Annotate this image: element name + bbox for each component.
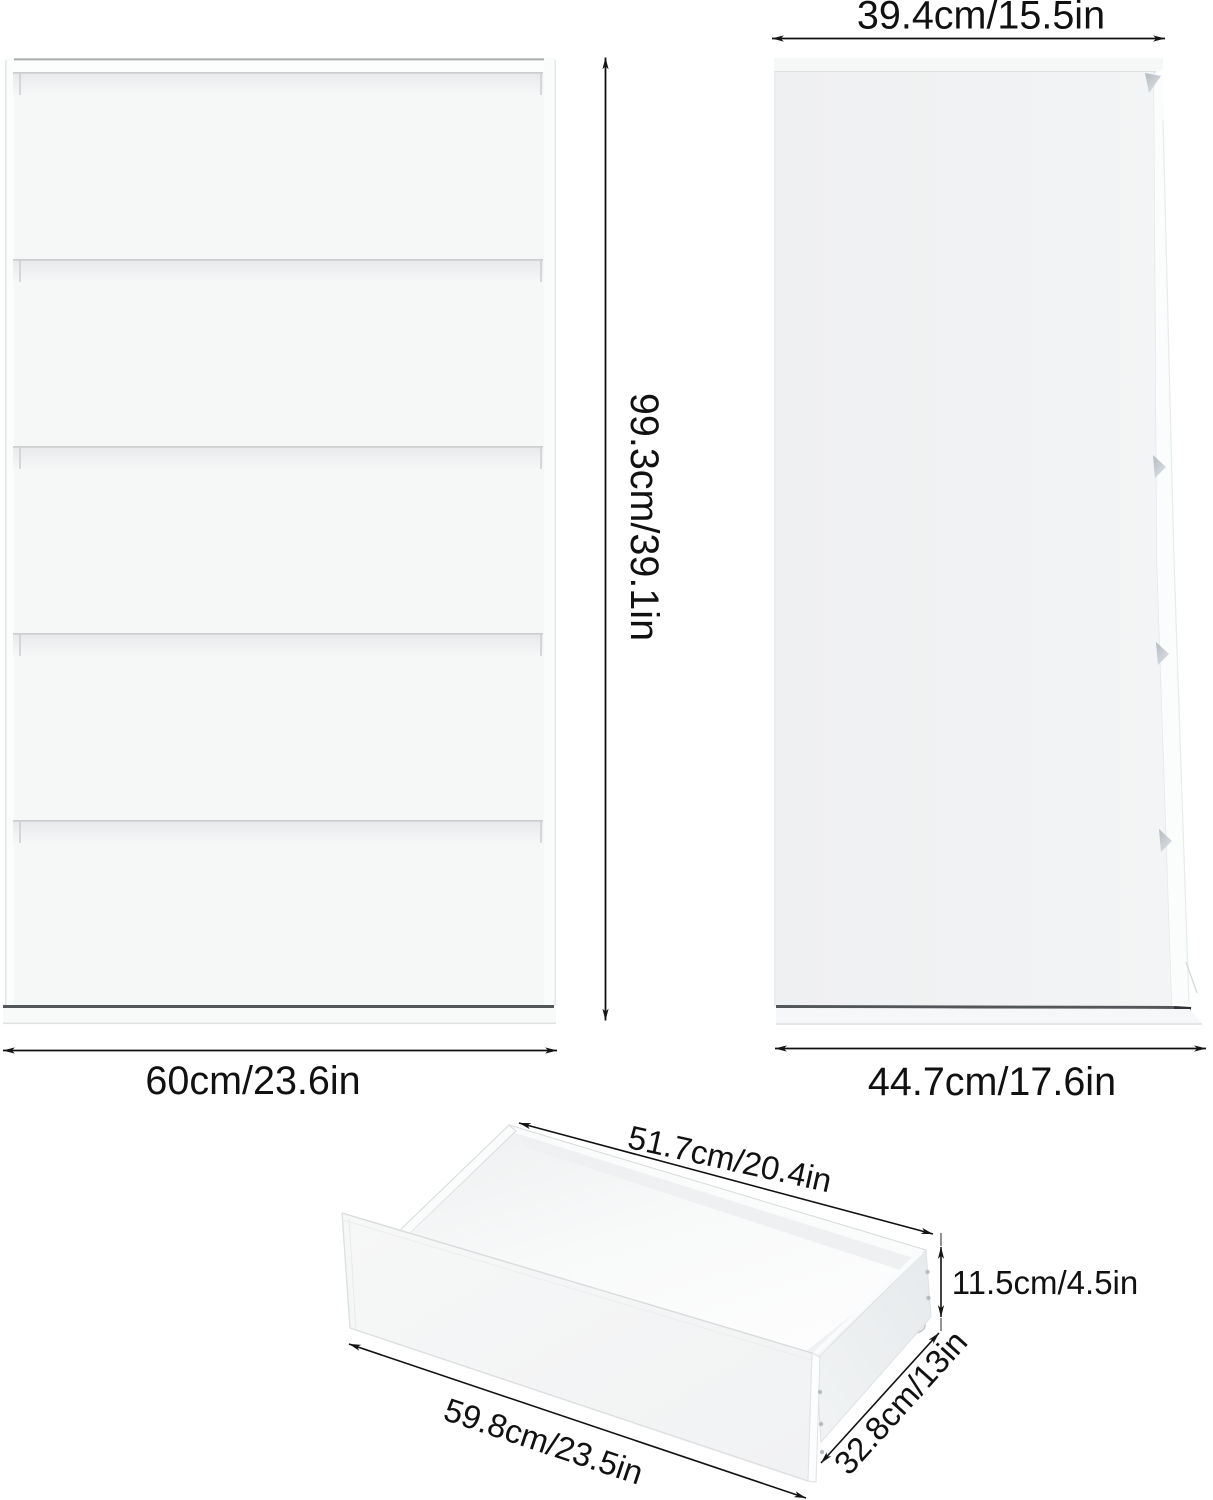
svg-text:44.7cm/17.6in: 44.7cm/17.6in — [868, 1060, 1116, 1104]
svg-text:99.3cm/39.1in: 99.3cm/39.1in — [622, 393, 666, 641]
svg-text:39.4cm/15.5in: 39.4cm/15.5in — [857, 0, 1105, 38]
svg-text:11.5cm/4.5in: 11.5cm/4.5in — [952, 1264, 1139, 1301]
svg-text:60cm/23.6in: 60cm/23.6in — [145, 1059, 360, 1103]
